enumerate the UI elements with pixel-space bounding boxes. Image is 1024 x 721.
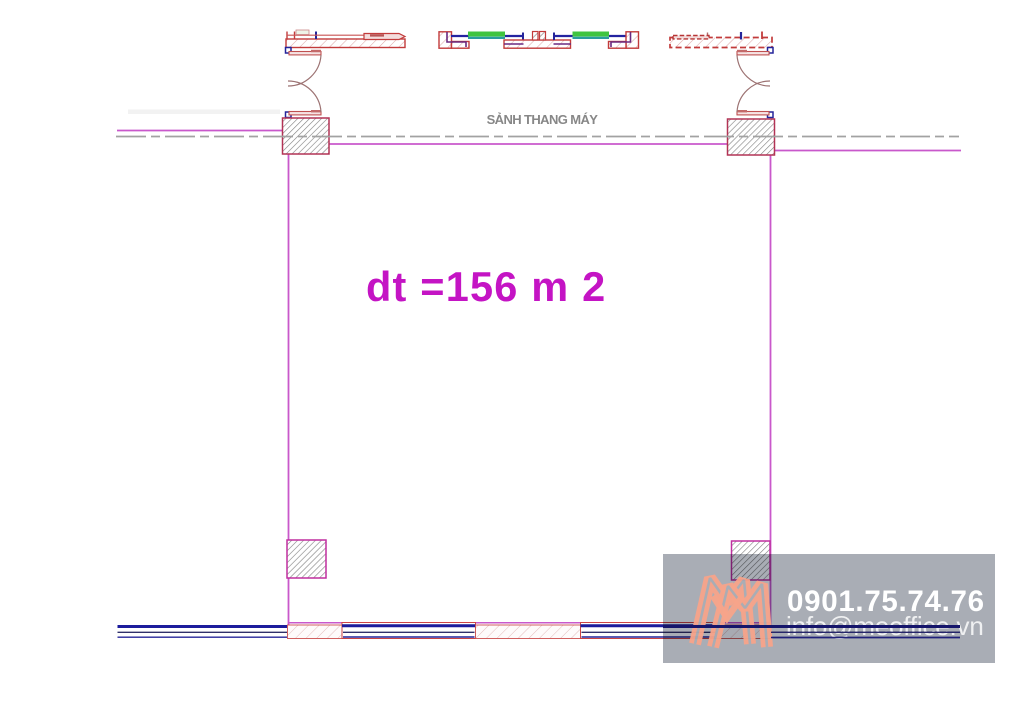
svg-text:SẢNH THANG MÁY: SẢNH THANG MÁY bbox=[487, 112, 599, 127]
svg-text:dt =156 m 2: dt =156 m 2 bbox=[366, 263, 606, 310]
